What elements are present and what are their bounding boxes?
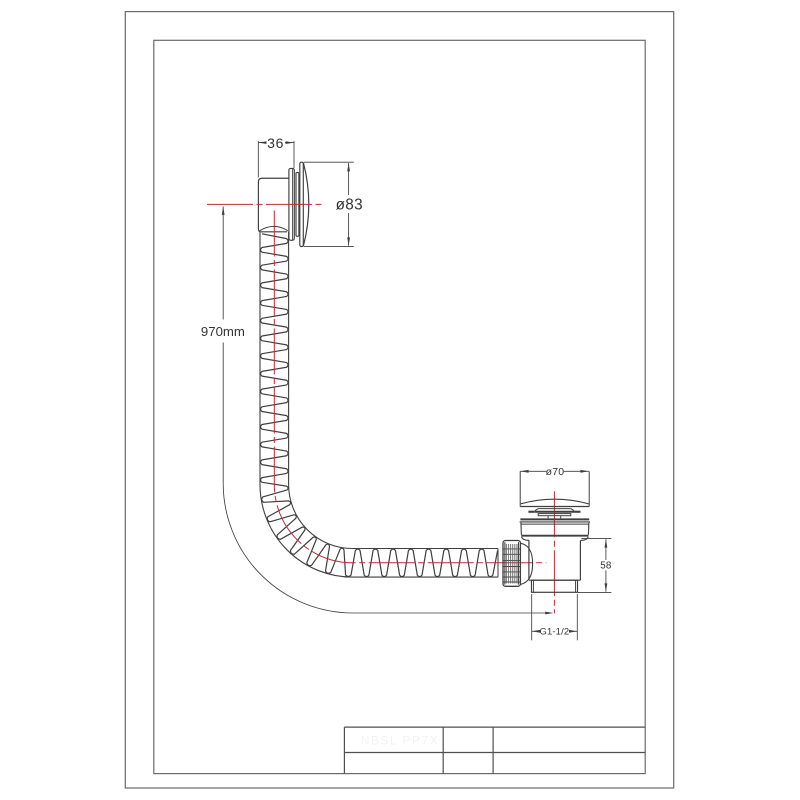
svg-text:G1-1/2: G1-1/2 — [539, 626, 569, 637]
svg-text:36: 36 — [267, 135, 284, 151]
svg-text:NBSL PP7X: NBSL PP7X — [361, 734, 439, 748]
svg-text:ø83: ø83 — [336, 197, 363, 214]
svg-text:ø70: ø70 — [546, 466, 565, 478]
svg-text:58: 58 — [600, 561, 612, 572]
svg-text:970mm: 970mm — [201, 324, 245, 339]
